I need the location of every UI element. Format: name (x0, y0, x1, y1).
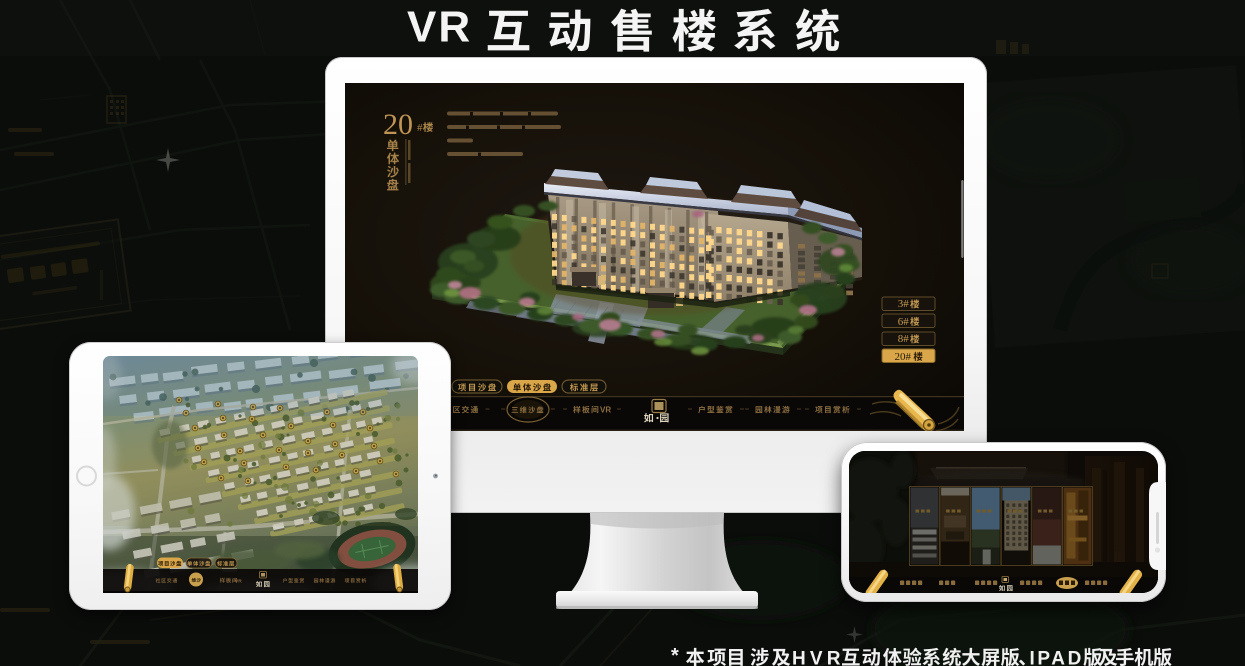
svg-text:VR: VR (235, 578, 242, 584)
svg-text:3#: 3# (898, 298, 910, 310)
svg-text:8#: 8# (898, 333, 910, 345)
svg-text:20: 20 (383, 108, 413, 141)
svg-text:#: # (417, 122, 423, 134)
svg-text:IPAD: IPAD (1030, 648, 1084, 666)
svg-text:VR: VR (407, 3, 472, 52)
svg-text:VR: VR (600, 406, 611, 415)
svg-text:6#: 6# (898, 316, 910, 328)
svg-text:20#: 20# (895, 351, 912, 363)
svg-text:*: * (671, 645, 679, 666)
svg-text:HVR: HVR (792, 648, 845, 666)
